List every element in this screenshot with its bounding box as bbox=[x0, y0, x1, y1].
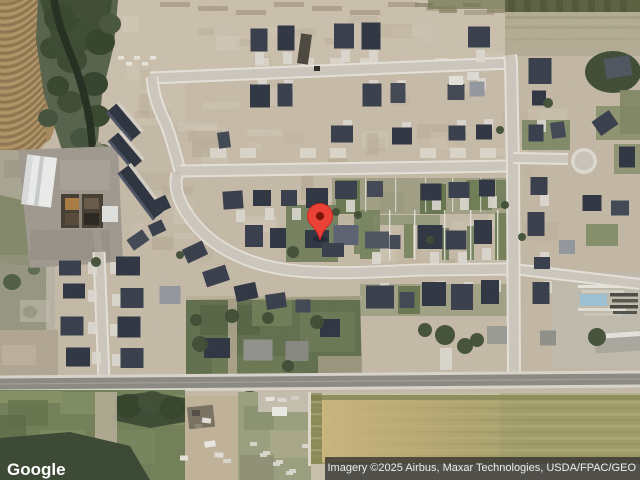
svg-text:Imagery ©2025 Airbus, Maxar Te: Imagery ©2025 Airbus, Maxar Technologies… bbox=[328, 462, 637, 474]
svg-text:Google: Google bbox=[7, 460, 66, 479]
